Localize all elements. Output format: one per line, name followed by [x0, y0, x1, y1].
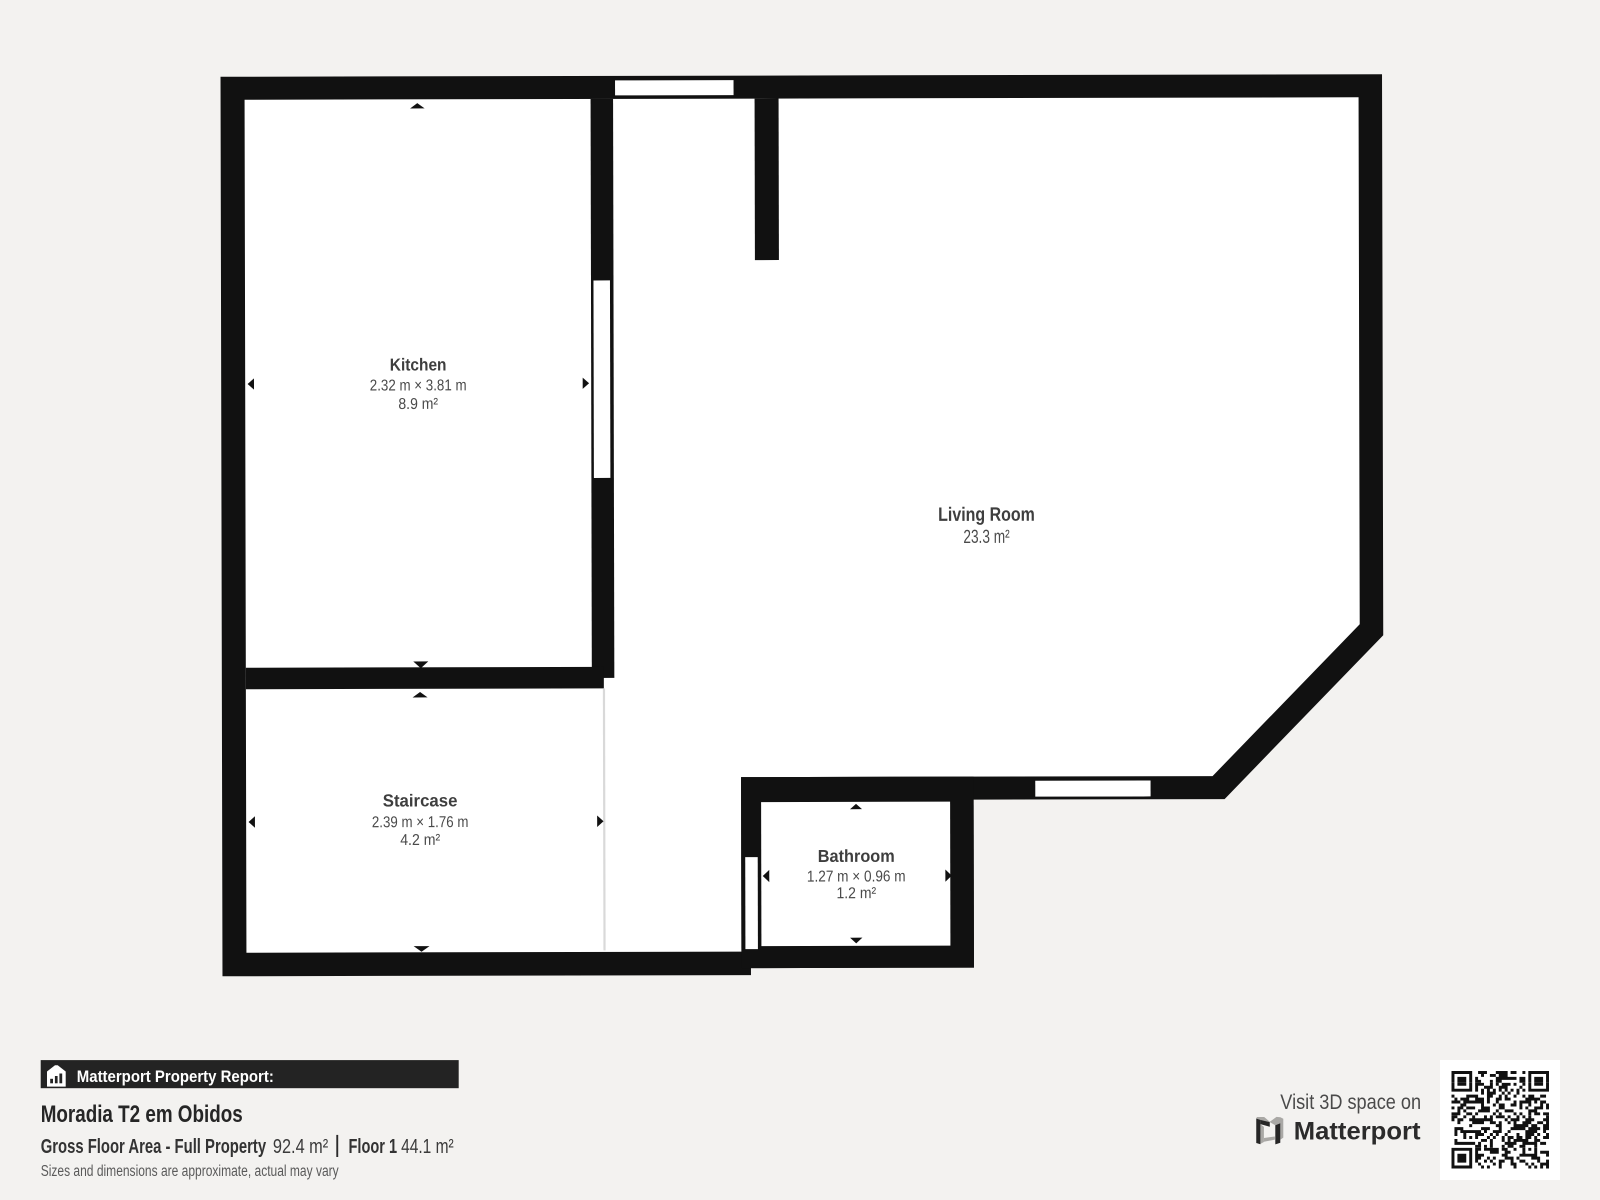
- svg-text:2.32 m × 3.81 m: 2.32 m × 3.81 m: [370, 377, 467, 394]
- svg-text:23.3 m²: 23.3 m²: [963, 527, 1009, 548]
- svg-text:Visit 3D space on: Visit 3D space on: [1280, 1090, 1421, 1114]
- svg-text:44.1 m²: 44.1 m²: [401, 1136, 454, 1158]
- svg-text:8.9 m²: 8.9 m²: [398, 396, 438, 413]
- svg-text:1.2 m²: 1.2 m²: [836, 885, 876, 902]
- svg-text:Kitchen: Kitchen: [390, 354, 447, 374]
- svg-text:1.27 m × 0.96 m: 1.27 m × 0.96 m: [807, 868, 906, 885]
- svg-text:Bathroom: Bathroom: [818, 846, 895, 866]
- svg-text:Matterport: Matterport: [1294, 1118, 1421, 1146]
- svg-text:4.2 m²: 4.2 m²: [400, 832, 440, 849]
- svg-text:Moradia T2 em Obidos: Moradia T2 em Obidos: [41, 1101, 243, 1128]
- svg-text:Staircase: Staircase: [383, 790, 458, 810]
- svg-text:92.4 m²: 92.4 m²: [273, 1136, 329, 1158]
- svg-text:Matterport Property Report:: Matterport Property Report:: [77, 1068, 274, 1086]
- svg-text:Sizes and dimensions are appro: Sizes and dimensions are approximate, ac…: [41, 1163, 339, 1180]
- svg-text:Floor 1: Floor 1: [349, 1135, 398, 1158]
- svg-text:2.39 m × 1.76 m: 2.39 m × 1.76 m: [372, 814, 469, 831]
- svg-text:Gross Floor Area - Full Proper: Gross Floor Area - Full Property: [41, 1135, 267, 1158]
- svg-text:Living Room: Living Room: [938, 504, 1035, 526]
